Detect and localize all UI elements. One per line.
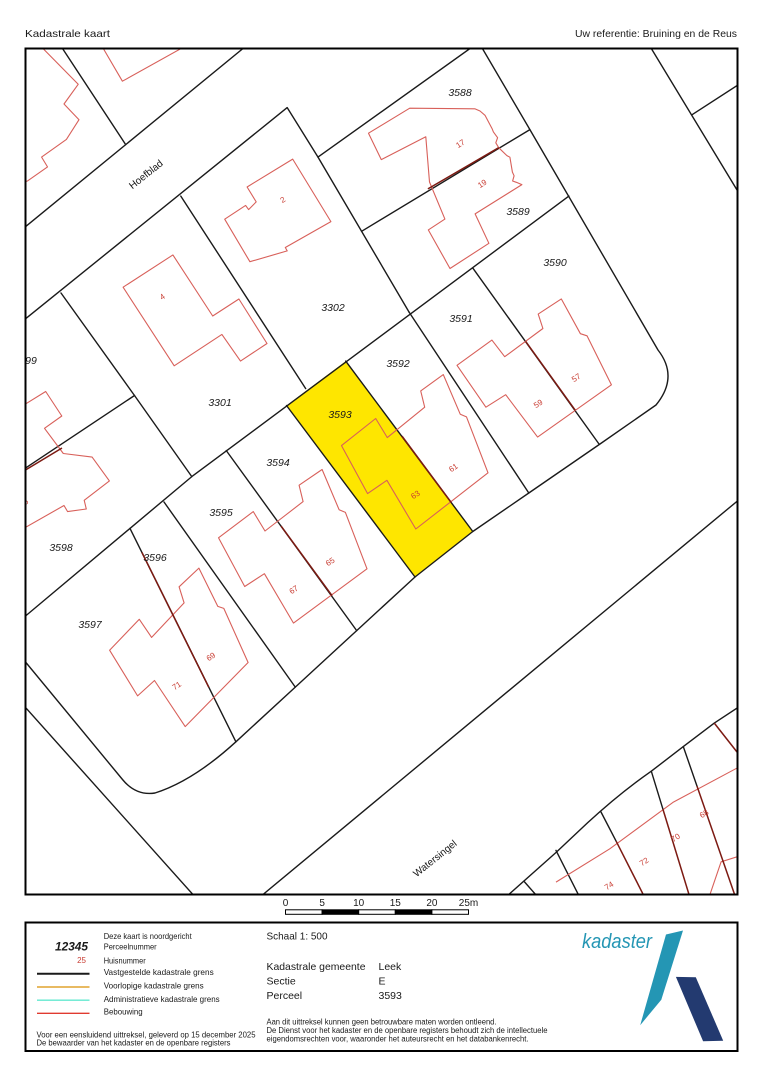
svg-text:kadaster: kadaster bbox=[582, 931, 653, 953]
svg-text:Schaal 1: 500: Schaal 1: 500 bbox=[267, 931, 328, 943]
svg-text:10: 10 bbox=[353, 898, 365, 909]
svg-text:Huisnummer: Huisnummer bbox=[104, 955, 146, 965]
svg-text:20: 20 bbox=[426, 898, 438, 909]
svg-text:De bewaarder van het kadaster: De bewaarder van het kadaster en de open… bbox=[37, 1037, 231, 1047]
svg-text:Kadastrale kaart: Kadastrale kaart bbox=[25, 28, 110, 40]
svg-text:0: 0 bbox=[283, 898, 289, 909]
svg-text:3595: 3595 bbox=[209, 507, 233, 519]
svg-text:3589: 3589 bbox=[506, 206, 530, 218]
svg-text:E: E bbox=[379, 976, 386, 988]
svg-text:Deze kaart is noordgericht: Deze kaart is noordgericht bbox=[104, 931, 193, 941]
svg-text:3588: 3588 bbox=[448, 87, 472, 99]
svg-text:15: 15 bbox=[390, 898, 402, 909]
svg-text:25m: 25m bbox=[459, 898, 478, 909]
svg-text:Kadastrale gemeente: Kadastrale gemeente bbox=[267, 961, 366, 973]
svg-text:99: 99 bbox=[25, 355, 37, 367]
svg-text:3591: 3591 bbox=[449, 313, 472, 325]
svg-text:25: 25 bbox=[77, 956, 86, 965]
svg-text:3590: 3590 bbox=[543, 257, 567, 269]
svg-text:Leek: Leek bbox=[379, 961, 403, 973]
svg-text:3593: 3593 bbox=[379, 990, 403, 1002]
svg-text:3597: 3597 bbox=[78, 619, 103, 631]
svg-text:3592: 3592 bbox=[386, 358, 410, 370]
svg-text:3598: 3598 bbox=[49, 542, 73, 554]
svg-text:Perceelnummer: Perceelnummer bbox=[104, 942, 157, 952]
svg-text:eigendomsrechten voor, waarond: eigendomsrechten voor, waaronder het aut… bbox=[267, 1034, 529, 1043]
svg-text:3301: 3301 bbox=[208, 397, 231, 409]
svg-text:3593: 3593 bbox=[328, 409, 352, 421]
svg-text:3302: 3302 bbox=[321, 302, 345, 314]
svg-text:3596: 3596 bbox=[143, 552, 167, 564]
svg-text:Voorlopige kadastrale grens: Voorlopige kadastrale grens bbox=[104, 980, 204, 990]
svg-text:Uw referentie: Bruining en de: Uw referentie: Bruining en de Reus bbox=[575, 28, 737, 40]
svg-text:Perceel: Perceel bbox=[267, 990, 303, 1002]
svg-text:12345: 12345 bbox=[55, 942, 89, 954]
svg-text:Sectie: Sectie bbox=[267, 976, 296, 988]
svg-text:Bebouwing: Bebouwing bbox=[104, 1007, 143, 1017]
svg-text:Administratieve kadastrale gre: Administratieve kadastrale grens bbox=[104, 994, 220, 1004]
svg-text:5: 5 bbox=[319, 898, 325, 909]
svg-text:3594: 3594 bbox=[266, 457, 290, 469]
svg-text:Vastgestelde kadastrale grens: Vastgestelde kadastrale grens bbox=[104, 967, 214, 977]
